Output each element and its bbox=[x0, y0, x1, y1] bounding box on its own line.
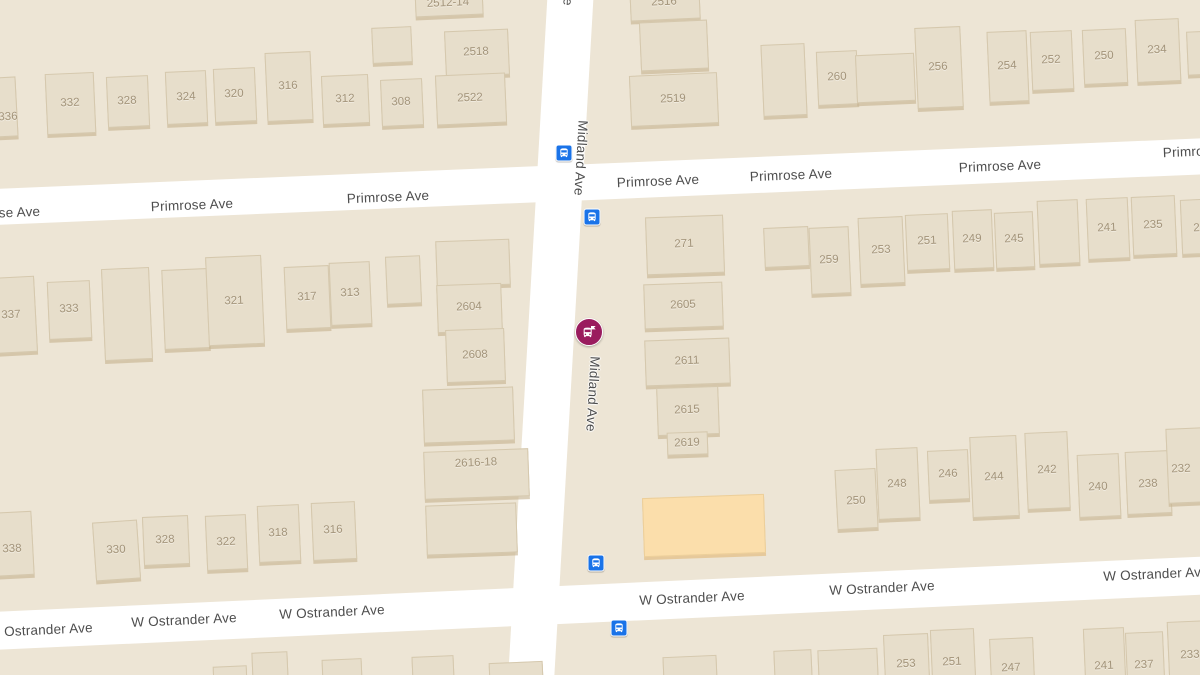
building-footprint bbox=[809, 226, 852, 295]
highlighted-building[interactable] bbox=[642, 494, 766, 557]
building-footprint bbox=[414, 0, 483, 17]
building-footprint bbox=[213, 665, 248, 675]
building-footprint bbox=[629, 0, 700, 22]
building-footprint bbox=[322, 658, 363, 675]
bus-stop-icon[interactable] bbox=[588, 555, 605, 572]
building-footprint bbox=[883, 633, 930, 675]
building-footprint bbox=[435, 239, 511, 288]
building-footprint bbox=[161, 268, 210, 350]
bus-stop-icon[interactable] bbox=[584, 209, 601, 226]
building-footprint bbox=[444, 29, 510, 78]
building-footprint bbox=[905, 213, 950, 271]
building-footprint bbox=[205, 514, 248, 571]
building-footprint bbox=[662, 655, 717, 675]
building-footprint bbox=[644, 338, 731, 387]
building-footprint bbox=[0, 276, 38, 355]
building-footprint bbox=[1082, 28, 1128, 85]
building-footprint bbox=[930, 628, 976, 675]
building-footprint bbox=[445, 328, 506, 383]
building-footprint bbox=[1186, 30, 1200, 75]
building-footprint bbox=[1180, 198, 1200, 255]
building-footprint bbox=[643, 282, 724, 330]
building-footprint bbox=[1024, 431, 1070, 510]
building-footprint bbox=[321, 74, 370, 125]
building-footprint bbox=[986, 30, 1029, 103]
building-footprint bbox=[760, 43, 807, 117]
building-footprint bbox=[817, 648, 878, 675]
building-footprint bbox=[425, 502, 518, 555]
building-footprint bbox=[213, 67, 257, 123]
building-footprint bbox=[329, 261, 373, 326]
map-canvas[interactable]: 3363323283243203163123082512-14251825222… bbox=[0, 0, 1200, 675]
building-footprint bbox=[101, 267, 153, 361]
building-footprint bbox=[855, 53, 916, 104]
building-footprint bbox=[251, 651, 288, 675]
building-footprint bbox=[371, 26, 413, 64]
building-footprint bbox=[385, 255, 422, 304]
building-footprint bbox=[106, 75, 150, 128]
building-footprint bbox=[667, 431, 709, 455]
building-footprint bbox=[645, 215, 725, 276]
building-footprint bbox=[639, 20, 709, 72]
street-name-label: Primrose Ave bbox=[1163, 142, 1200, 160]
building-footprint bbox=[435, 72, 507, 125]
building-footprint bbox=[411, 655, 454, 675]
building-footprint bbox=[816, 50, 859, 106]
building-footprint bbox=[311, 501, 357, 561]
building-footprint bbox=[1167, 620, 1200, 675]
building-footprint bbox=[1125, 631, 1165, 675]
building-footprint bbox=[994, 211, 1035, 269]
building-footprint bbox=[142, 515, 190, 566]
building-footprint bbox=[47, 280, 92, 340]
building-footprint bbox=[1131, 195, 1178, 256]
building-footprint bbox=[92, 520, 141, 582]
building-footprint bbox=[436, 283, 503, 333]
building-footprint bbox=[1086, 197, 1131, 260]
bus-stop-icon[interactable] bbox=[611, 620, 628, 637]
building-footprint bbox=[914, 26, 963, 109]
building-footprint bbox=[257, 504, 301, 563]
building-footprint bbox=[1165, 427, 1200, 504]
building-footprint bbox=[1037, 199, 1081, 265]
building-footprint bbox=[265, 51, 314, 122]
street-name-label: Midland Ave bbox=[583, 356, 602, 432]
building-footprint bbox=[489, 661, 544, 675]
building-footprint bbox=[1125, 450, 1173, 515]
building-footprint bbox=[656, 386, 720, 436]
building-footprint bbox=[773, 649, 812, 675]
building-footprint bbox=[423, 448, 530, 500]
building-footprint bbox=[629, 72, 719, 127]
building-footprint bbox=[284, 265, 332, 330]
building-footprint bbox=[45, 72, 97, 135]
building-footprint bbox=[952, 209, 995, 270]
building-footprint bbox=[858, 216, 906, 285]
building-footprint bbox=[763, 226, 810, 268]
building-footprint bbox=[875, 447, 920, 520]
bus-stop-icon[interactable] bbox=[556, 145, 573, 162]
building-footprint bbox=[1077, 453, 1122, 518]
building-footprint bbox=[989, 637, 1035, 675]
building-footprint bbox=[834, 468, 878, 530]
building-footprint bbox=[380, 78, 424, 127]
building-footprint bbox=[1030, 30, 1075, 91]
building-footprint bbox=[0, 511, 35, 577]
transit-station-icon[interactable] bbox=[575, 318, 603, 346]
building-footprint bbox=[927, 449, 970, 501]
building-footprint bbox=[205, 255, 265, 346]
building-footprint bbox=[0, 76, 19, 139]
building-footprint bbox=[165, 70, 208, 125]
building-footprint bbox=[969, 435, 1019, 518]
building-footprint bbox=[1083, 627, 1126, 675]
building-footprint bbox=[1135, 18, 1182, 83]
building-footprint bbox=[422, 386, 515, 443]
